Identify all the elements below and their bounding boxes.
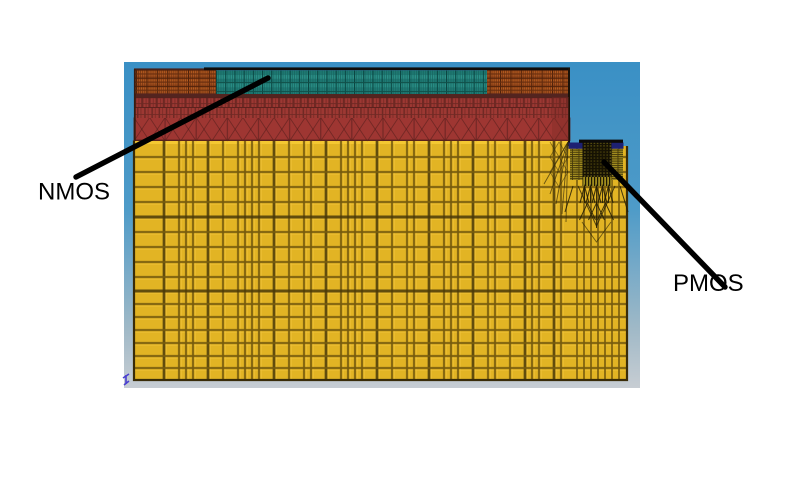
svg-text:NMOS: NMOS (38, 179, 110, 206)
svg-text:PMOS: PMOS (673, 270, 744, 297)
